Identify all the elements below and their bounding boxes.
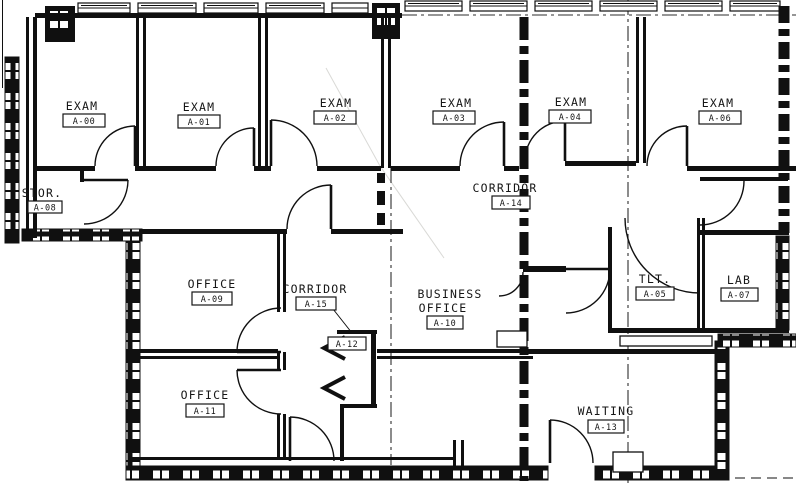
room-name: EXAM [555, 95, 588, 109]
window [405, 1, 462, 11]
room-label-stor-a08: STOR. A-08 [22, 186, 63, 214]
window [266, 3, 324, 13]
room-number: A-05 [644, 290, 666, 300]
counter [620, 336, 712, 346]
window [204, 3, 258, 13]
window [665, 1, 722, 11]
room-name: EXAM [183, 100, 216, 114]
vestibule-step [613, 452, 643, 472]
room-name: BUSINESS [418, 287, 483, 301]
room-number: A-06 [709, 114, 731, 124]
cabinet [497, 331, 527, 347]
room-label-a12: A-12 [328, 337, 366, 350]
room-name: TLT. [639, 272, 672, 286]
room-number: A-13 [595, 423, 617, 433]
room-number: A-10 [434, 319, 456, 329]
window [730, 1, 780, 11]
room-number: A-02 [324, 114, 346, 124]
window [138, 3, 196, 13]
floor-plan-drawing: EXAM A-00 EXAM A-01 EXAM A-02 EXAM A-03 … [0, 0, 796, 492]
window [78, 3, 130, 13]
room-name: OFFICE [181, 388, 230, 402]
room-name-line2: OFFICE [419, 301, 468, 315]
room-name: STOR. [22, 186, 63, 200]
room-number: A-14 [500, 199, 522, 209]
room-number: A-01 [188, 118, 210, 128]
room-number: A-12 [336, 340, 358, 350]
room-number: A-15 [305, 300, 327, 310]
room-number: A-08 [34, 204, 56, 214]
room-name: OFFICE [188, 277, 237, 291]
column [372, 3, 400, 39]
window [600, 1, 657, 11]
room-number: A-04 [559, 113, 581, 123]
floor-plan-page: EXAM A-00 EXAM A-01 EXAM A-02 EXAM A-03 … [0, 0, 796, 492]
room-name: WAITING [578, 404, 635, 418]
room-number: A-11 [194, 407, 216, 417]
room-number: A-09 [201, 295, 223, 305]
window [470, 1, 527, 11]
room-name: EXAM [320, 96, 353, 110]
room-name: EXAM [702, 96, 735, 110]
paper-background [0, 0, 796, 492]
room-name: CORRIDOR [283, 282, 348, 296]
room-number: A-07 [728, 291, 750, 301]
column [45, 6, 75, 42]
room-name: CORRIDOR [473, 181, 538, 195]
room-name: EXAM [66, 99, 99, 113]
room-number: A-03 [443, 114, 465, 124]
room-number: A-00 [73, 117, 95, 127]
window [535, 1, 592, 11]
room-name: EXAM [440, 96, 473, 110]
exterior-window-band [78, 1, 780, 13]
window [332, 3, 368, 13]
room-name: LAB [727, 273, 751, 287]
